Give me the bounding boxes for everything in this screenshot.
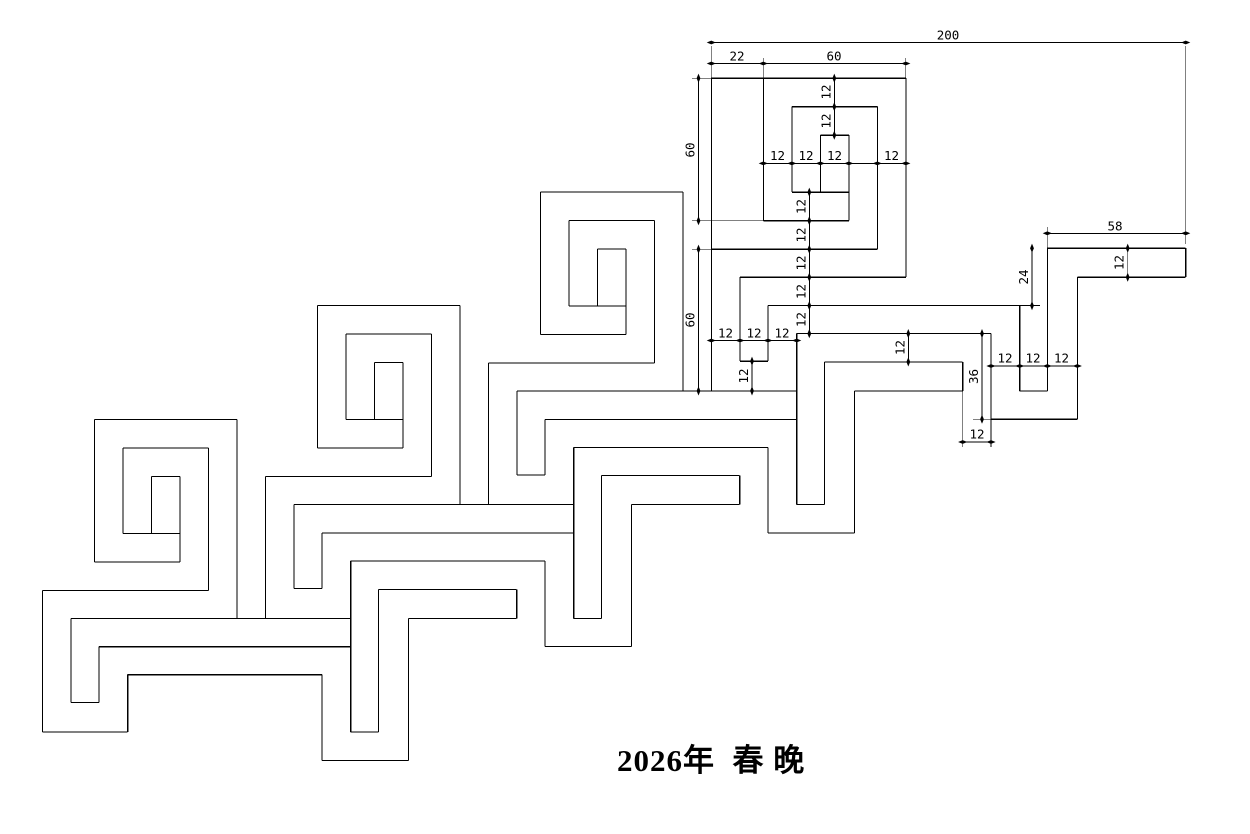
dimension-label: 60 [683, 142, 698, 157]
dimension-arrow-tick [986, 440, 995, 444]
dimension-label: 60 [826, 49, 841, 64]
dimension-arrow-tick [816, 162, 825, 166]
dimension-arrow-tick [980, 415, 984, 424]
dimension-label: 12 [774, 326, 789, 341]
dimension-arrow-tick [807, 245, 811, 254]
dimension-label: 12 [718, 326, 733, 341]
dimension-arrow-tick [697, 245, 701, 254]
dimension-arrow-tick [832, 74, 836, 83]
dimension-arrow-tick [906, 357, 910, 366]
dimension-arrow-tick [1181, 41, 1190, 45]
dimension-arrow-tick [1073, 364, 1082, 368]
dimension-arrow-tick [759, 162, 768, 166]
dimension-arrow-tick [707, 41, 716, 45]
dimension-label: 12 [827, 148, 842, 163]
dimension-arrow-tick [707, 339, 716, 343]
dimension-label: 12 [794, 284, 809, 299]
dimension-label: 24 [1016, 269, 1031, 284]
dimension-label: 58 [1107, 219, 1122, 234]
dimension-arrow-tick [873, 162, 882, 166]
dimension-arrow-tick [735, 339, 744, 343]
dimension-arrow-tick [832, 102, 836, 111]
dimension-label: 60 [683, 312, 698, 327]
dimension-arrow-tick [697, 386, 701, 395]
dimension-arrow-tick [750, 386, 754, 395]
dimension-label: 12 [746, 326, 761, 341]
dimension-label: 12 [770, 148, 785, 163]
dimension-arrow-tick [958, 440, 967, 444]
dimension-arrow-tick [807, 216, 811, 225]
dimension-label: 12 [794, 227, 809, 242]
dimension-arrow-tick [980, 329, 984, 338]
dimension-label: 12 [1025, 351, 1040, 366]
cad-drawing-page: 2002260606012121212121212121212121212121… [0, 0, 1250, 834]
drawing-title: 2026年 春 晚 [617, 735, 805, 780]
dimension-arrow-tick [906, 329, 910, 338]
dimension-label: 12 [794, 312, 809, 327]
dimension-arrow-tick [1030, 244, 1034, 253]
dimension-arrow-tick [807, 188, 811, 197]
dimension-label: 200 [937, 28, 960, 43]
dimension-arrow-tick [792, 339, 801, 343]
dimension-label: 12 [819, 113, 834, 128]
dimension-label: 12 [884, 148, 899, 163]
dimension-arrow-tick [1043, 364, 1052, 368]
dimension-label: 12 [736, 368, 751, 383]
dimension-arrow-tick [763, 339, 772, 343]
dimension-arrow-tick [986, 364, 995, 368]
dimension-arrow-tick [901, 162, 910, 166]
dimension-arrow-tick [807, 329, 811, 338]
dimension-arrow-tick [1030, 301, 1034, 310]
dimension-arrow-tick [707, 62, 716, 66]
dimension-label: 12 [1054, 351, 1069, 366]
dimension-label: 22 [729, 49, 744, 64]
dimension-arrow-tick [901, 62, 910, 66]
dimension-arrow-tick [1181, 231, 1190, 235]
dimension-arrow-tick [697, 74, 701, 83]
meander-pattern-drawing: 2002260606012121212121212121212121212121… [0, 0, 1250, 834]
dimension-arrow-tick [844, 162, 853, 166]
dimension-arrow-tick [1015, 364, 1024, 368]
dimension-arrow-tick [1126, 244, 1130, 253]
dimension-label: 12 [997, 351, 1012, 366]
dimension-label: 12 [798, 148, 813, 163]
dimension-arrow-tick [1126, 273, 1130, 282]
dimension-label: 12 [893, 340, 908, 355]
dimension-arrow-tick [759, 62, 768, 66]
dimension-label: 36 [966, 369, 981, 384]
dimension-arrow-tick [807, 273, 811, 282]
dimension-label: 12 [1112, 255, 1127, 270]
dimension-arrow-tick [697, 216, 701, 225]
dimension-label: 12 [794, 255, 809, 270]
dimension-label: 12 [794, 199, 809, 214]
dimension-arrow-tick [807, 301, 811, 310]
dimension-arrow-tick [787, 162, 796, 166]
dimension-label: 12 [969, 427, 984, 442]
dimension-label: 12 [819, 84, 834, 99]
dimension-arrow-tick [1043, 231, 1052, 235]
dimension-arrow-tick [832, 131, 836, 140]
dimension-arrow-tick [750, 357, 754, 366]
